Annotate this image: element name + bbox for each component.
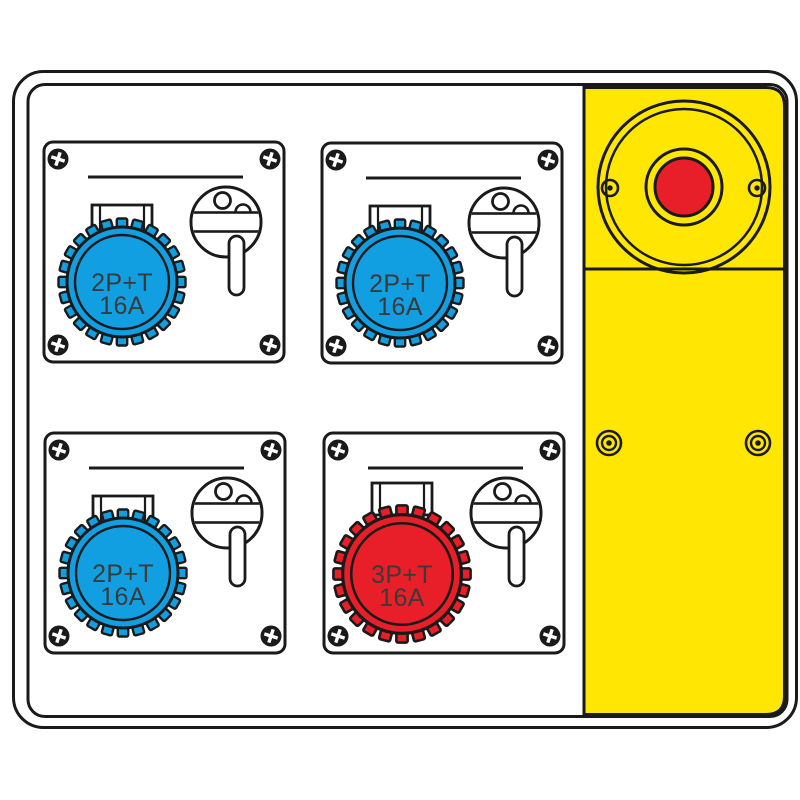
distribution-board-illustration: 2P+T 16A 2P+T 16A 2P+T 16A	[0, 0, 800, 800]
phillips-screw-icon	[261, 626, 282, 647]
emergency-stop-button[interactable]	[655, 158, 713, 216]
phillips-screw-icon	[328, 440, 349, 461]
phillips-screw-icon	[49, 626, 70, 647]
socket-label-rating: 16A	[100, 583, 145, 611]
phillips-screw-icon	[261, 440, 282, 461]
phillips-screw-icon	[538, 150, 559, 171]
socket-module-bottom-left: 2P+T 16A	[45, 433, 285, 653]
phillips-screw-icon	[540, 440, 561, 461]
socket-label-rating: 16A	[379, 584, 424, 612]
phillips-screw-icon	[260, 149, 281, 170]
phillips-screw-icon	[538, 336, 559, 357]
phillips-screw-icon	[48, 335, 69, 356]
phillips-screw-icon	[260, 335, 281, 356]
phillips-screw-icon	[326, 336, 347, 357]
phillips-screw-icon	[328, 626, 349, 647]
socket-label-rating: 16A	[377, 293, 422, 321]
phillips-screw-icon	[48, 149, 69, 170]
socket-label-rating: 16A	[99, 292, 144, 320]
socket-module-top-right: 2P+T 16A	[322, 143, 562, 363]
phillips-screw-icon	[540, 626, 561, 647]
emergency-stop-panel	[584, 88, 785, 715]
phillips-screw-icon	[49, 440, 70, 461]
board-drawing: 2P+T 16A 2P+T 16A 2P+T 16A	[0, 0, 800, 800]
socket-module-bottom-right: 3P+T 16A	[324, 433, 564, 653]
socket-module-top-left: 2P+T 16A	[44, 142, 284, 362]
phillips-screw-icon	[326, 150, 347, 171]
